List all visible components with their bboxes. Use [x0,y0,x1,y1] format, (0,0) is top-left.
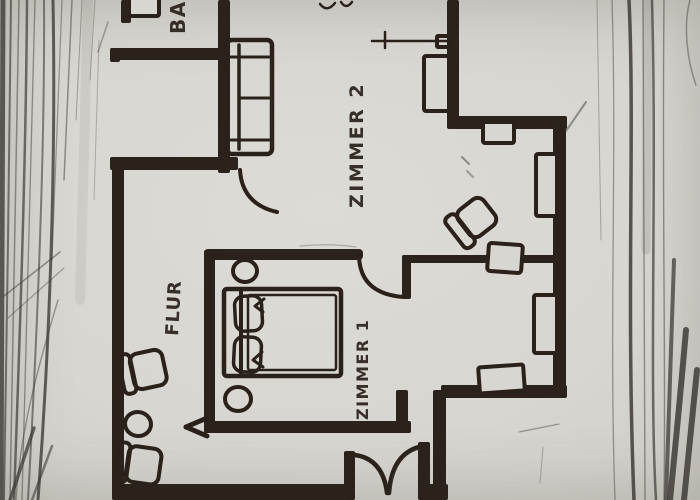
double-bed [224,289,341,376]
nightstand-bottom [225,387,251,411]
wall-bath-bottom [110,48,223,60]
entry-door-jamb-right [418,442,430,500]
hall-round-table [123,410,153,438]
doors [240,170,423,493]
hall-armchair-upper [117,347,168,395]
entry-door-leaf-ghost [391,449,420,490]
floor-plan-photo: BAD ZIMMER 2 ZIMMER 1 FLUR [0,0,700,500]
label-flur: FLUR [162,280,186,337]
corner-smudge [555,119,567,129]
entrance-arrow [186,418,207,436]
sofa [227,40,272,154]
nightstand-top [233,260,257,282]
wall-bedroom-top [204,249,363,260]
wall-vestibule-right [433,390,446,500]
entry-door-leaf-left [355,455,387,493]
door-arc-bedroom [359,256,404,297]
window-room1-bottom [478,364,525,393]
window-right-wall-upper [536,154,557,216]
wall-bedroom-bottom [204,421,411,433]
label-zimmer-2: ZIMMER 2 [346,82,368,208]
left-paper-edge-hatching [1,0,108,500]
right-paper-edge-lines [597,0,697,500]
window-bath-top [129,0,159,16]
entry-door-leaf-right [389,446,423,493]
wall-bottom-left-run [112,484,346,500]
label-zimmer-1: ZIMMER 1 [353,319,372,420]
label-bad: BAD [166,0,190,34]
wall-bedroom-left [204,250,215,432]
entry-door-jamb-left [344,451,355,500]
door-arc-hall-to-room2 [240,170,277,212]
wall-room1-door-jamb [402,255,411,299]
cutoff-marks-top [320,3,335,8]
window-room2-upper-right [424,56,449,111]
window-right-wall-lower [534,295,557,353]
floor-plan-drawing: BAD ZIMMER 2 ZIMMER 1 FLUR [0,0,700,500]
window-room2-jog [483,122,514,143]
wall-room1-top [402,255,555,263]
wall-bath-side [110,48,120,62]
wall-bottom-right-run [427,484,448,500]
room2-side-table [487,243,523,273]
